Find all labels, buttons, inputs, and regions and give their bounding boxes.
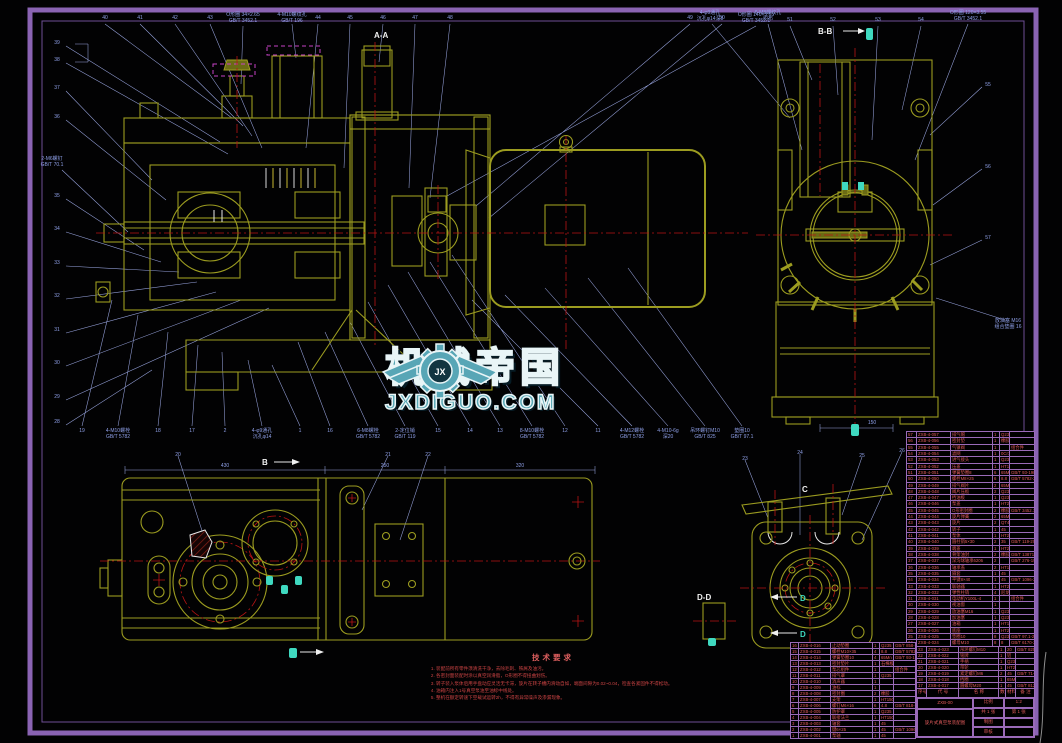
bom-cell: 31 bbox=[907, 596, 917, 601]
bom-cell bbox=[1010, 457, 1034, 462]
bom-cell: 紧定螺钉M6 bbox=[959, 671, 999, 676]
bom-cell: 56 bbox=[907, 438, 917, 443]
bom-cell: 1 bbox=[873, 721, 880, 726]
bom-cell: 53 bbox=[907, 457, 917, 462]
bom-cell: 1 bbox=[993, 432, 1000, 437]
bom-cell: 65Mn bbox=[880, 655, 894, 660]
bom-cell: 滤网 bbox=[951, 451, 993, 456]
cad-drawing-canvas: A-A bbox=[0, 0, 1062, 743]
bom-cell: 橡胶 bbox=[880, 691, 894, 696]
bom-cell: 2 bbox=[873, 691, 880, 696]
bom-cell bbox=[894, 673, 915, 678]
bom-cell: 22 bbox=[917, 653, 927, 658]
bom-cell: 44 bbox=[907, 514, 917, 519]
bom-cell bbox=[1010, 432, 1034, 437]
bom-table-continued: 23ZXB-4-023吊环螺钉M10120GB/T 825-198822ZXB-… bbox=[916, 646, 1035, 689]
bom-cell: ZXB-4-028 bbox=[917, 615, 951, 620]
bom-cell: ZXB-4-052 bbox=[917, 464, 951, 469]
bom-cell: ZXB-4-046 bbox=[917, 501, 951, 506]
bom-cell: 加油塞 bbox=[951, 615, 993, 620]
bom-cell: 2 bbox=[993, 558, 1000, 563]
bom-cell: ZXB-4-007 bbox=[799, 697, 831, 702]
bom-cell: 1 bbox=[993, 577, 1000, 582]
bom-cell: 20 bbox=[1006, 647, 1016, 652]
bom-cell: 1 bbox=[873, 661, 880, 666]
view-arrow-label-b: B bbox=[262, 458, 268, 467]
bom-cell: GB/T 13871-1992 bbox=[1010, 552, 1034, 557]
bom-cell bbox=[1010, 584, 1034, 589]
bom-cell: O形密封圈 bbox=[951, 508, 993, 513]
bom-cell bbox=[1010, 489, 1034, 494]
bom-cell: ZXB-4-014 bbox=[799, 655, 831, 660]
bom-cell: 电动机Y100L-4 bbox=[951, 596, 993, 601]
bom-cell: 1 bbox=[993, 438, 1000, 443]
bom-cell: 40 bbox=[907, 539, 917, 544]
bom-cell bbox=[1016, 659, 1034, 664]
bom-cell: 4 bbox=[873, 655, 880, 660]
bom-cell bbox=[1016, 677, 1034, 682]
bom-cell: HT200 bbox=[1006, 665, 1016, 670]
tech-req-item: 装配前所有零件须清洗干净，去除毛刺、铁屑及油污。 bbox=[436, 665, 678, 672]
bom-cell: 45 bbox=[880, 733, 894, 739]
bom-cell: 2 bbox=[993, 508, 1000, 513]
bom-cell bbox=[880, 685, 894, 690]
bom-cell: 45 bbox=[907, 508, 917, 513]
tech-req-item: 油箱内注入1号真空泵油至油标中线处。 bbox=[436, 687, 678, 694]
bom-cell: ZXB-4-002 bbox=[799, 727, 831, 732]
bom-cell bbox=[1010, 483, 1034, 488]
bom-cell: 57 bbox=[907, 432, 917, 437]
bom-cell: ZXB-4-050 bbox=[917, 476, 951, 481]
bom-cell: 圆柱销5×30 bbox=[951, 539, 993, 544]
bom-cell bbox=[894, 685, 915, 690]
bom-cell: GB/T 276-1994 bbox=[1010, 558, 1034, 563]
bom-cell: ZXB-4-027 bbox=[917, 621, 951, 626]
bom-cell: ZXB-4-043 bbox=[917, 520, 951, 525]
bom-cell: ZXB-4-018 bbox=[927, 677, 959, 682]
bom-cell: HT150 bbox=[1000, 464, 1010, 469]
bom-cell: ZXB-4-048 bbox=[917, 489, 951, 494]
bom-cell: 底座 bbox=[951, 628, 993, 633]
bom-cell: 6 bbox=[873, 703, 880, 708]
bom-cell: 平键8×40 bbox=[951, 577, 993, 582]
bom-cell: 排气帽 bbox=[951, 432, 993, 437]
bom-cell: GB/T 119-2000 bbox=[1010, 539, 1034, 544]
bom-cell: ZXB-4-011 bbox=[799, 673, 831, 678]
bom-cell: Q235 bbox=[1000, 634, 1010, 639]
bom-cell: 1 bbox=[993, 571, 1000, 576]
bom-cell: 12 bbox=[791, 667, 799, 672]
drawing-code: ZXB-00 bbox=[917, 698, 973, 709]
bom-cell: 挡油板 bbox=[951, 495, 993, 500]
bom-cell: 10 bbox=[791, 679, 799, 684]
bom-cell bbox=[1010, 602, 1034, 607]
bom-cell: ZXB-4-019 bbox=[927, 671, 959, 676]
bom-cell: 1 bbox=[993, 464, 1000, 469]
gear-icon: JX bbox=[417, 344, 463, 398]
bom-cell: 联轴器 bbox=[951, 584, 993, 589]
bom-cell: 1 bbox=[999, 647, 1006, 652]
bom-cell: 2 bbox=[993, 552, 1000, 557]
bom-header-name: 名 称 bbox=[959, 689, 999, 697]
dd-detail-view: D-D bbox=[693, 593, 737, 646]
bom-cell: ZXB-4-003 bbox=[799, 721, 831, 726]
drawn-label: 制图 bbox=[973, 718, 1004, 728]
bom-cell: 组合件 bbox=[894, 667, 915, 672]
sheet-number: 第 1 张 bbox=[1004, 708, 1035, 718]
bom-cell: 19 bbox=[917, 671, 927, 676]
drawn-value bbox=[1004, 718, 1035, 728]
checked-value bbox=[1004, 727, 1035, 737]
bom-cell: 1 bbox=[993, 533, 1000, 538]
bom-cell: ZXB-4-008 bbox=[799, 691, 831, 696]
bom-cell bbox=[1010, 565, 1034, 570]
bom-cell: 螺栓M10×35 bbox=[831, 649, 873, 654]
bom-cell: 1 bbox=[993, 628, 1000, 633]
bom-cell: 45 bbox=[1000, 571, 1010, 576]
tech-req-item: 整机在额定转速下空载试运转2h，不得有异常噪声及渗漏现象。 bbox=[436, 694, 678, 701]
bom-cell bbox=[1010, 464, 1034, 469]
bom-cell bbox=[1010, 615, 1034, 620]
view-arrow-label-d2: D bbox=[800, 630, 806, 639]
bom-cell: 18 bbox=[917, 677, 927, 682]
bom-cell: 1 bbox=[873, 727, 880, 732]
bom-cell: 13 bbox=[791, 661, 799, 666]
bom-cell: 4 bbox=[873, 649, 880, 654]
bom-cell: GB/T 5782-2000 bbox=[1010, 476, 1034, 481]
bom-cell: 32 bbox=[907, 590, 917, 595]
bom-cell: 2 bbox=[993, 514, 1000, 519]
bom-cell: 泵盖 bbox=[951, 501, 993, 506]
bom-cell: 止动垫圈 bbox=[831, 643, 873, 648]
bom-cell: GB/T 818-2000 bbox=[894, 703, 915, 708]
bom-cell: HT150 bbox=[1000, 565, 1010, 570]
bom-cell: 放油塞M16 bbox=[951, 609, 993, 614]
bom-cell: 橡胶 bbox=[1000, 552, 1010, 557]
bom-cell: 端盖 bbox=[951, 546, 993, 551]
bom-cell bbox=[880, 679, 894, 684]
bom-cell: GB/T 858-1988 bbox=[894, 643, 915, 648]
bom-cell: 2 bbox=[993, 565, 1000, 570]
bom-cell: 键6×25 bbox=[831, 727, 873, 732]
bom-cell: 1 bbox=[873, 697, 880, 702]
bom-cell: ZXB-4-013 bbox=[799, 661, 831, 666]
bom-cell: Q235 bbox=[1000, 457, 1010, 462]
bom-cell: 1 bbox=[999, 659, 1006, 664]
bom-cell: 65Mn bbox=[1000, 470, 1010, 475]
bom-cell: 1 bbox=[999, 665, 1006, 670]
bom-cell: Q235 bbox=[1000, 489, 1010, 494]
bom-cell: ZXB-4-025 bbox=[917, 634, 951, 639]
section-label-bb: B-B bbox=[818, 27, 832, 36]
bom-cell: ZXB-4-035 bbox=[917, 571, 951, 576]
bom-cell: 51 bbox=[907, 470, 917, 475]
tech-req-item: 转子装入泵体后用手盘动应灵活无卡滞，旋片在转子槽内滑动自如，端面间隙为0.02~… bbox=[436, 680, 678, 687]
bom-cell: 1 bbox=[873, 685, 880, 690]
bom-cell: ZXB-4-021 bbox=[927, 659, 959, 664]
bom-cell: 吊环螺钉M10 bbox=[959, 647, 999, 652]
bom-cell: 1 bbox=[791, 733, 799, 739]
bom-cell: 2 bbox=[791, 727, 799, 732]
tech-req-item: 各密封面装配时涂以真空润滑脂，O形圈不得扭曲划伤。 bbox=[436, 672, 678, 679]
bom-cell: 1 bbox=[993, 527, 1000, 532]
bom-cell: ZXB-4-031 bbox=[917, 596, 951, 601]
bom-cell: 1 bbox=[873, 667, 880, 672]
bom-cell bbox=[894, 691, 915, 696]
bom-cell: 41 bbox=[907, 533, 917, 538]
bom-cell: 尼龙 bbox=[1000, 590, 1010, 595]
bom-cell: GB/T 3452.1-2005 bbox=[1010, 508, 1034, 513]
scale-label: 比例 bbox=[973, 698, 1004, 708]
bom-cell: ZXB-4-049 bbox=[917, 483, 951, 488]
bom-cell: 橡胶 bbox=[1000, 508, 1010, 513]
bom-cell: 35 bbox=[1000, 539, 1010, 544]
bom-cell: 1 bbox=[993, 596, 1000, 601]
bom-cell: 1 bbox=[999, 653, 1006, 658]
technical-requirements: 技术要求 装配前所有零件须清洗干净，去除毛刺、铁屑及油污。 各密封面装配时涂以真… bbox=[428, 652, 678, 702]
bom-cell: 4 bbox=[993, 590, 1000, 595]
bom-cell bbox=[894, 697, 915, 702]
bom-cell: ZXB-4-020 bbox=[927, 665, 959, 670]
bom-cell: GB/T 825-1988 bbox=[1016, 647, 1034, 652]
bom-cell: GB/T 5782-2000 bbox=[894, 649, 915, 654]
bom-cell: 8 bbox=[993, 634, 1000, 639]
bom-cell: 26 bbox=[907, 628, 917, 633]
bom-cell: 1 bbox=[993, 445, 1000, 450]
plan-view: B bbox=[100, 458, 600, 658]
bom-cell: ZXB-4-009 bbox=[799, 685, 831, 690]
bom-cell: Q235 bbox=[880, 643, 894, 648]
bom-cell bbox=[894, 661, 915, 666]
bom-cell: ZXB-4-032 bbox=[917, 590, 951, 595]
bom-cell: 50 bbox=[907, 476, 917, 481]
bom-cell: 38 bbox=[907, 552, 917, 557]
bom-cell: 23 bbox=[917, 647, 927, 652]
bom-cell: 排气阀片 bbox=[951, 483, 993, 488]
bom-cell: 5 bbox=[791, 709, 799, 714]
bom-cell: 49 bbox=[907, 483, 917, 488]
bom-cell: ZXB-4-033 bbox=[917, 584, 951, 589]
bom-cell bbox=[894, 715, 915, 720]
bom-cell: 14 bbox=[791, 655, 799, 660]
bom-cell: HT200 bbox=[1000, 533, 1010, 538]
leader-lines bbox=[62, 24, 1005, 540]
bom-cell: 25 bbox=[907, 634, 917, 639]
bom-cell: 1 bbox=[873, 733, 880, 739]
bom-cell: ZXB-4-041 bbox=[917, 533, 951, 538]
bom-cell: ZXB-4-001 bbox=[799, 733, 831, 739]
bom-cell: 15 bbox=[791, 649, 799, 654]
bom-cell: 45 bbox=[1006, 671, 1016, 676]
bom-cell: 泵体 bbox=[951, 533, 993, 538]
bom-cell: ZXB-4-038 bbox=[917, 552, 951, 557]
bom-cell: 油箱 bbox=[951, 621, 993, 626]
bom-header-qty: 数量 bbox=[999, 689, 1006, 697]
bom-cell: 1 bbox=[993, 546, 1000, 551]
bom-cell: 2 bbox=[993, 489, 1000, 494]
bom-cell: ZXB-4-039 bbox=[917, 546, 951, 551]
bom-cell: 8 bbox=[791, 691, 799, 696]
bom-cell: GB/T 71-1985 bbox=[1016, 671, 1034, 676]
bom-cell: ZXB-4-012 bbox=[799, 667, 831, 672]
bom-cell: GB/T 93-1987 bbox=[1010, 470, 1034, 475]
bom-cell: ZXB-4-015 bbox=[799, 649, 831, 654]
bom-cell: ZXB-4-053 bbox=[917, 457, 951, 462]
bom-cell: 铭牌 bbox=[959, 653, 999, 658]
scale-value: 1:2 bbox=[1004, 698, 1035, 708]
bom-cell: ZXB-4-005 bbox=[799, 709, 831, 714]
bom-cell: HT150 bbox=[880, 697, 894, 702]
bom-cell: 1 bbox=[993, 621, 1000, 626]
bom-cell: ZXB-4-006 bbox=[799, 703, 831, 708]
bom-cell: 2 bbox=[993, 520, 1000, 525]
bom-cell: 螺钉M6×16 bbox=[831, 703, 873, 708]
bom-cell: GB/T 1096-2003 bbox=[1010, 577, 1034, 582]
bom-cell: ZXB-4-042 bbox=[917, 527, 951, 532]
bom-cell: 4.8 bbox=[880, 703, 894, 708]
bom-cell: 42 bbox=[907, 527, 917, 532]
bom-cell: 1 bbox=[993, 501, 1000, 506]
bom-cell: 隔套 bbox=[951, 571, 993, 576]
bom-table-main: 57ZXB-4-057排气帽1Q23556ZXB-4-056密封垫1橡胶55ZX… bbox=[906, 431, 1035, 648]
bom-cell: 防护罩 bbox=[831, 709, 873, 714]
bom-cell: 深沟球轴承6206 bbox=[951, 558, 993, 563]
bom-cell: 弹簧垫圈8 bbox=[951, 470, 993, 475]
bom-cell: 54 bbox=[907, 451, 917, 456]
bom-cell: 泵芯组件 bbox=[831, 667, 873, 672]
bom-cell: 1 bbox=[993, 495, 1000, 500]
bom-cell bbox=[1010, 546, 1034, 551]
bom-cell: 垫圈10 bbox=[951, 634, 993, 639]
view-arrow-label-d1: D bbox=[800, 594, 806, 603]
sheet-count: 共 1 张 bbox=[973, 708, 1004, 718]
bom-cell: 34 bbox=[907, 577, 917, 582]
bom-cell: ZXB-4-004 bbox=[799, 715, 831, 720]
bom-cell: 65Mn bbox=[1000, 514, 1010, 519]
bom-cell: ZXB-4-047 bbox=[917, 495, 951, 500]
bom-cell: 43 bbox=[907, 520, 917, 525]
watermark: JX 机械帝国 JXDIGUO.COM bbox=[381, 332, 711, 418]
bom-cell: 1 bbox=[993, 615, 1000, 620]
bom-cell: 2 bbox=[993, 483, 1000, 488]
bom-cell: 1 bbox=[873, 643, 880, 648]
bom-cell: 9 bbox=[791, 685, 799, 690]
bom-cell: 52 bbox=[907, 464, 917, 469]
bom-cell: 1 bbox=[999, 677, 1006, 682]
bom-cell bbox=[1010, 501, 1034, 506]
bom-cell: 压盖 bbox=[951, 464, 993, 469]
bom-cell: ZXB-4-051 bbox=[917, 470, 951, 475]
exhaust-valve-springs bbox=[266, 168, 315, 188]
bom-cell: 1 bbox=[993, 609, 1000, 614]
bom-cell: 油标 bbox=[831, 685, 873, 690]
bom-cell: HT200 bbox=[1000, 546, 1010, 551]
bom-cell: 6 bbox=[993, 476, 1000, 481]
bom-cell: 8.8 bbox=[1000, 476, 1010, 481]
bom-cell bbox=[1010, 621, 1034, 626]
bom-cell: 1 bbox=[873, 673, 880, 678]
bom-cell bbox=[1010, 571, 1034, 576]
technical-requirements-title: 技术要求 bbox=[428, 652, 678, 663]
bom-cell: 45 bbox=[880, 727, 894, 732]
bom-cell: 2 bbox=[993, 539, 1000, 544]
bom-cell: 45 bbox=[1000, 527, 1010, 532]
bom-cell: 35 bbox=[907, 571, 917, 576]
bom-header-seq: 序号 bbox=[917, 689, 927, 697]
bom-cell: ZXB-4-040 bbox=[917, 539, 951, 544]
section-label-dd: D-D bbox=[697, 593, 711, 602]
bom-cell: HT200 bbox=[1000, 584, 1010, 589]
bom-cell: ZXB-4-016 bbox=[799, 643, 831, 648]
bom-cell: ZXB-4-029 bbox=[917, 609, 951, 614]
drawing-title: 旋片式真空泵装配图 bbox=[917, 709, 973, 737]
bom-cell: 气镇阀 bbox=[951, 445, 993, 450]
bom-cell: 骨架油封 bbox=[951, 552, 993, 557]
bom-cell: 8.8 bbox=[880, 649, 894, 654]
bom-row: 1ZXB-4-001泵轴145 bbox=[791, 733, 915, 739]
bom-cell: 46 bbox=[907, 501, 917, 506]
bom-cell: 密封圈 bbox=[831, 691, 873, 696]
bom-cell: 33 bbox=[907, 584, 917, 589]
bom-cell: 29 bbox=[907, 609, 917, 614]
bom-cell: 转子 bbox=[951, 527, 993, 532]
bom-cell: ZXB-4-057 bbox=[917, 432, 951, 437]
bom-cell: ZXB-4-055 bbox=[917, 445, 951, 450]
bom-cell: 密封垫片 bbox=[831, 661, 873, 666]
bom-cell: 6 bbox=[993, 470, 1000, 475]
bom-cell: HT150 bbox=[880, 715, 894, 720]
bom-header-remark: 备 注 bbox=[1016, 689, 1034, 697]
bom-cell: 组合件 bbox=[1010, 596, 1034, 601]
bom-cell: 手柄 bbox=[959, 659, 999, 664]
bom-cell: Q235 bbox=[1006, 659, 1016, 664]
section-label-aa: A-A bbox=[374, 31, 388, 40]
bom-cell: HT150 bbox=[1000, 621, 1010, 626]
bom-header-material: 材料 bbox=[1006, 689, 1016, 697]
bom-cell: 3 bbox=[791, 721, 799, 726]
bom-cell: 6 bbox=[791, 703, 799, 708]
bom-cell: 37 bbox=[907, 558, 917, 563]
bom-cell: 挡圈 bbox=[959, 677, 999, 682]
bom-cell bbox=[880, 667, 894, 672]
bom-cell bbox=[894, 721, 915, 726]
bom-cell: 1 bbox=[873, 709, 880, 714]
bom-cell: ZXB-4-026 bbox=[917, 628, 951, 633]
bom-cell: ZXB-4-034 bbox=[917, 577, 951, 582]
bom-cell: Q235 bbox=[1000, 432, 1010, 437]
bom-cell: ZXB-4-056 bbox=[917, 438, 951, 443]
bom-cell bbox=[1010, 495, 1034, 500]
bom-cell: 30 bbox=[907, 602, 917, 607]
bom-cell: 密封垫 bbox=[951, 438, 993, 443]
bom-cell: 4 bbox=[791, 715, 799, 720]
bom-cell: 28 bbox=[907, 615, 917, 620]
bom-cell: 联接法兰 bbox=[831, 715, 873, 720]
bom-cell bbox=[1016, 665, 1034, 670]
bom-cell bbox=[1000, 558, 1010, 563]
bom-cell: HT200 bbox=[1000, 628, 1010, 633]
bom-cell bbox=[1016, 653, 1034, 658]
bom-cell: 45 bbox=[1000, 577, 1010, 582]
bom-cell: Q235 bbox=[880, 709, 894, 714]
bom-cell: 11 bbox=[791, 673, 799, 678]
bom-cell: 铝 bbox=[1006, 653, 1016, 658]
bom-cell: Q235 bbox=[1000, 609, 1010, 614]
bom-cell: 1 bbox=[993, 602, 1000, 607]
bom-cell: ZXB-4-010 bbox=[799, 679, 831, 684]
bom-cell: 0Cr18 bbox=[1000, 451, 1010, 456]
watermark-initials: JX bbox=[434, 367, 445, 377]
